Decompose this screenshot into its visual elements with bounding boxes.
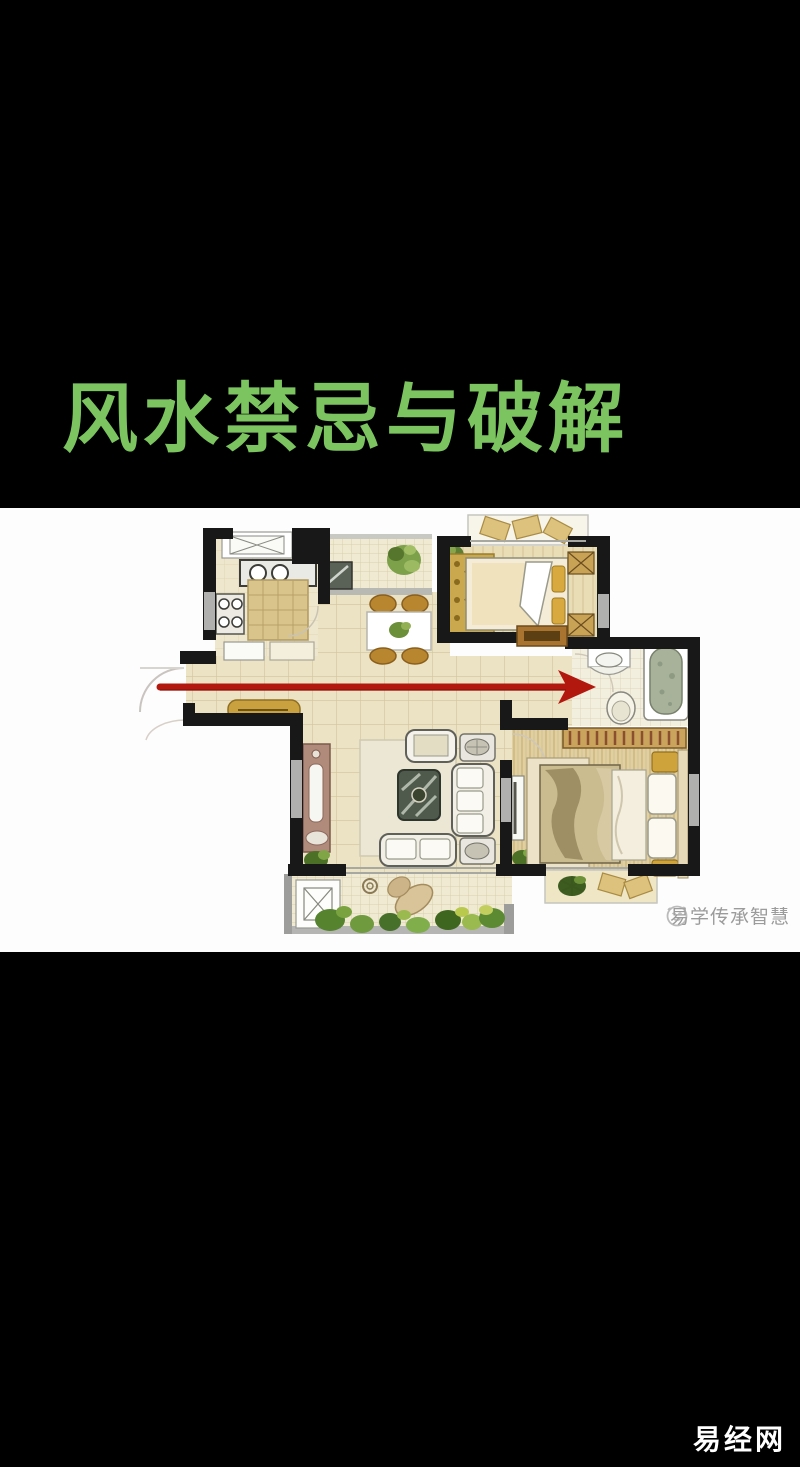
pillow	[648, 818, 676, 858]
floorplan-drawing	[0, 508, 800, 952]
bed-sheet	[612, 770, 646, 860]
kitchen-cabinet	[270, 642, 314, 660]
plant-icon	[387, 545, 421, 575]
site-brand: 易经网	[693, 1418, 786, 1458]
pillow	[648, 774, 676, 814]
video-frame: 风水禁忌与破解	[0, 0, 800, 1467]
decor-dish	[306, 831, 328, 845]
dining-chair	[370, 648, 396, 664]
sofa-cushions	[457, 768, 483, 833]
dining-chair	[402, 648, 428, 664]
gold-pillow	[552, 598, 565, 624]
gold-cushion	[652, 752, 678, 772]
page-title: 风水禁忌与破解	[62, 378, 629, 462]
plant-icon	[558, 876, 586, 896]
floorplan-panel: 易学传承智慧	[0, 508, 800, 952]
sink-basin-icon	[272, 565, 288, 581]
side-table	[460, 838, 495, 864]
sink-icon	[596, 653, 622, 667]
headboard	[678, 750, 688, 878]
vent-box-icon	[230, 536, 284, 554]
side-table	[460, 734, 495, 761]
dining-chair	[370, 595, 396, 613]
watermark: 易学传承智慧	[664, 902, 790, 929]
sink-basin-icon	[250, 565, 266, 581]
bathtub-basin	[650, 648, 682, 714]
kitchen-cabinet	[224, 642, 264, 660]
gold-pillow	[552, 566, 565, 592]
dining-chair	[402, 595, 428, 613]
tv-icon	[309, 764, 323, 822]
coffee-table	[398, 770, 440, 820]
